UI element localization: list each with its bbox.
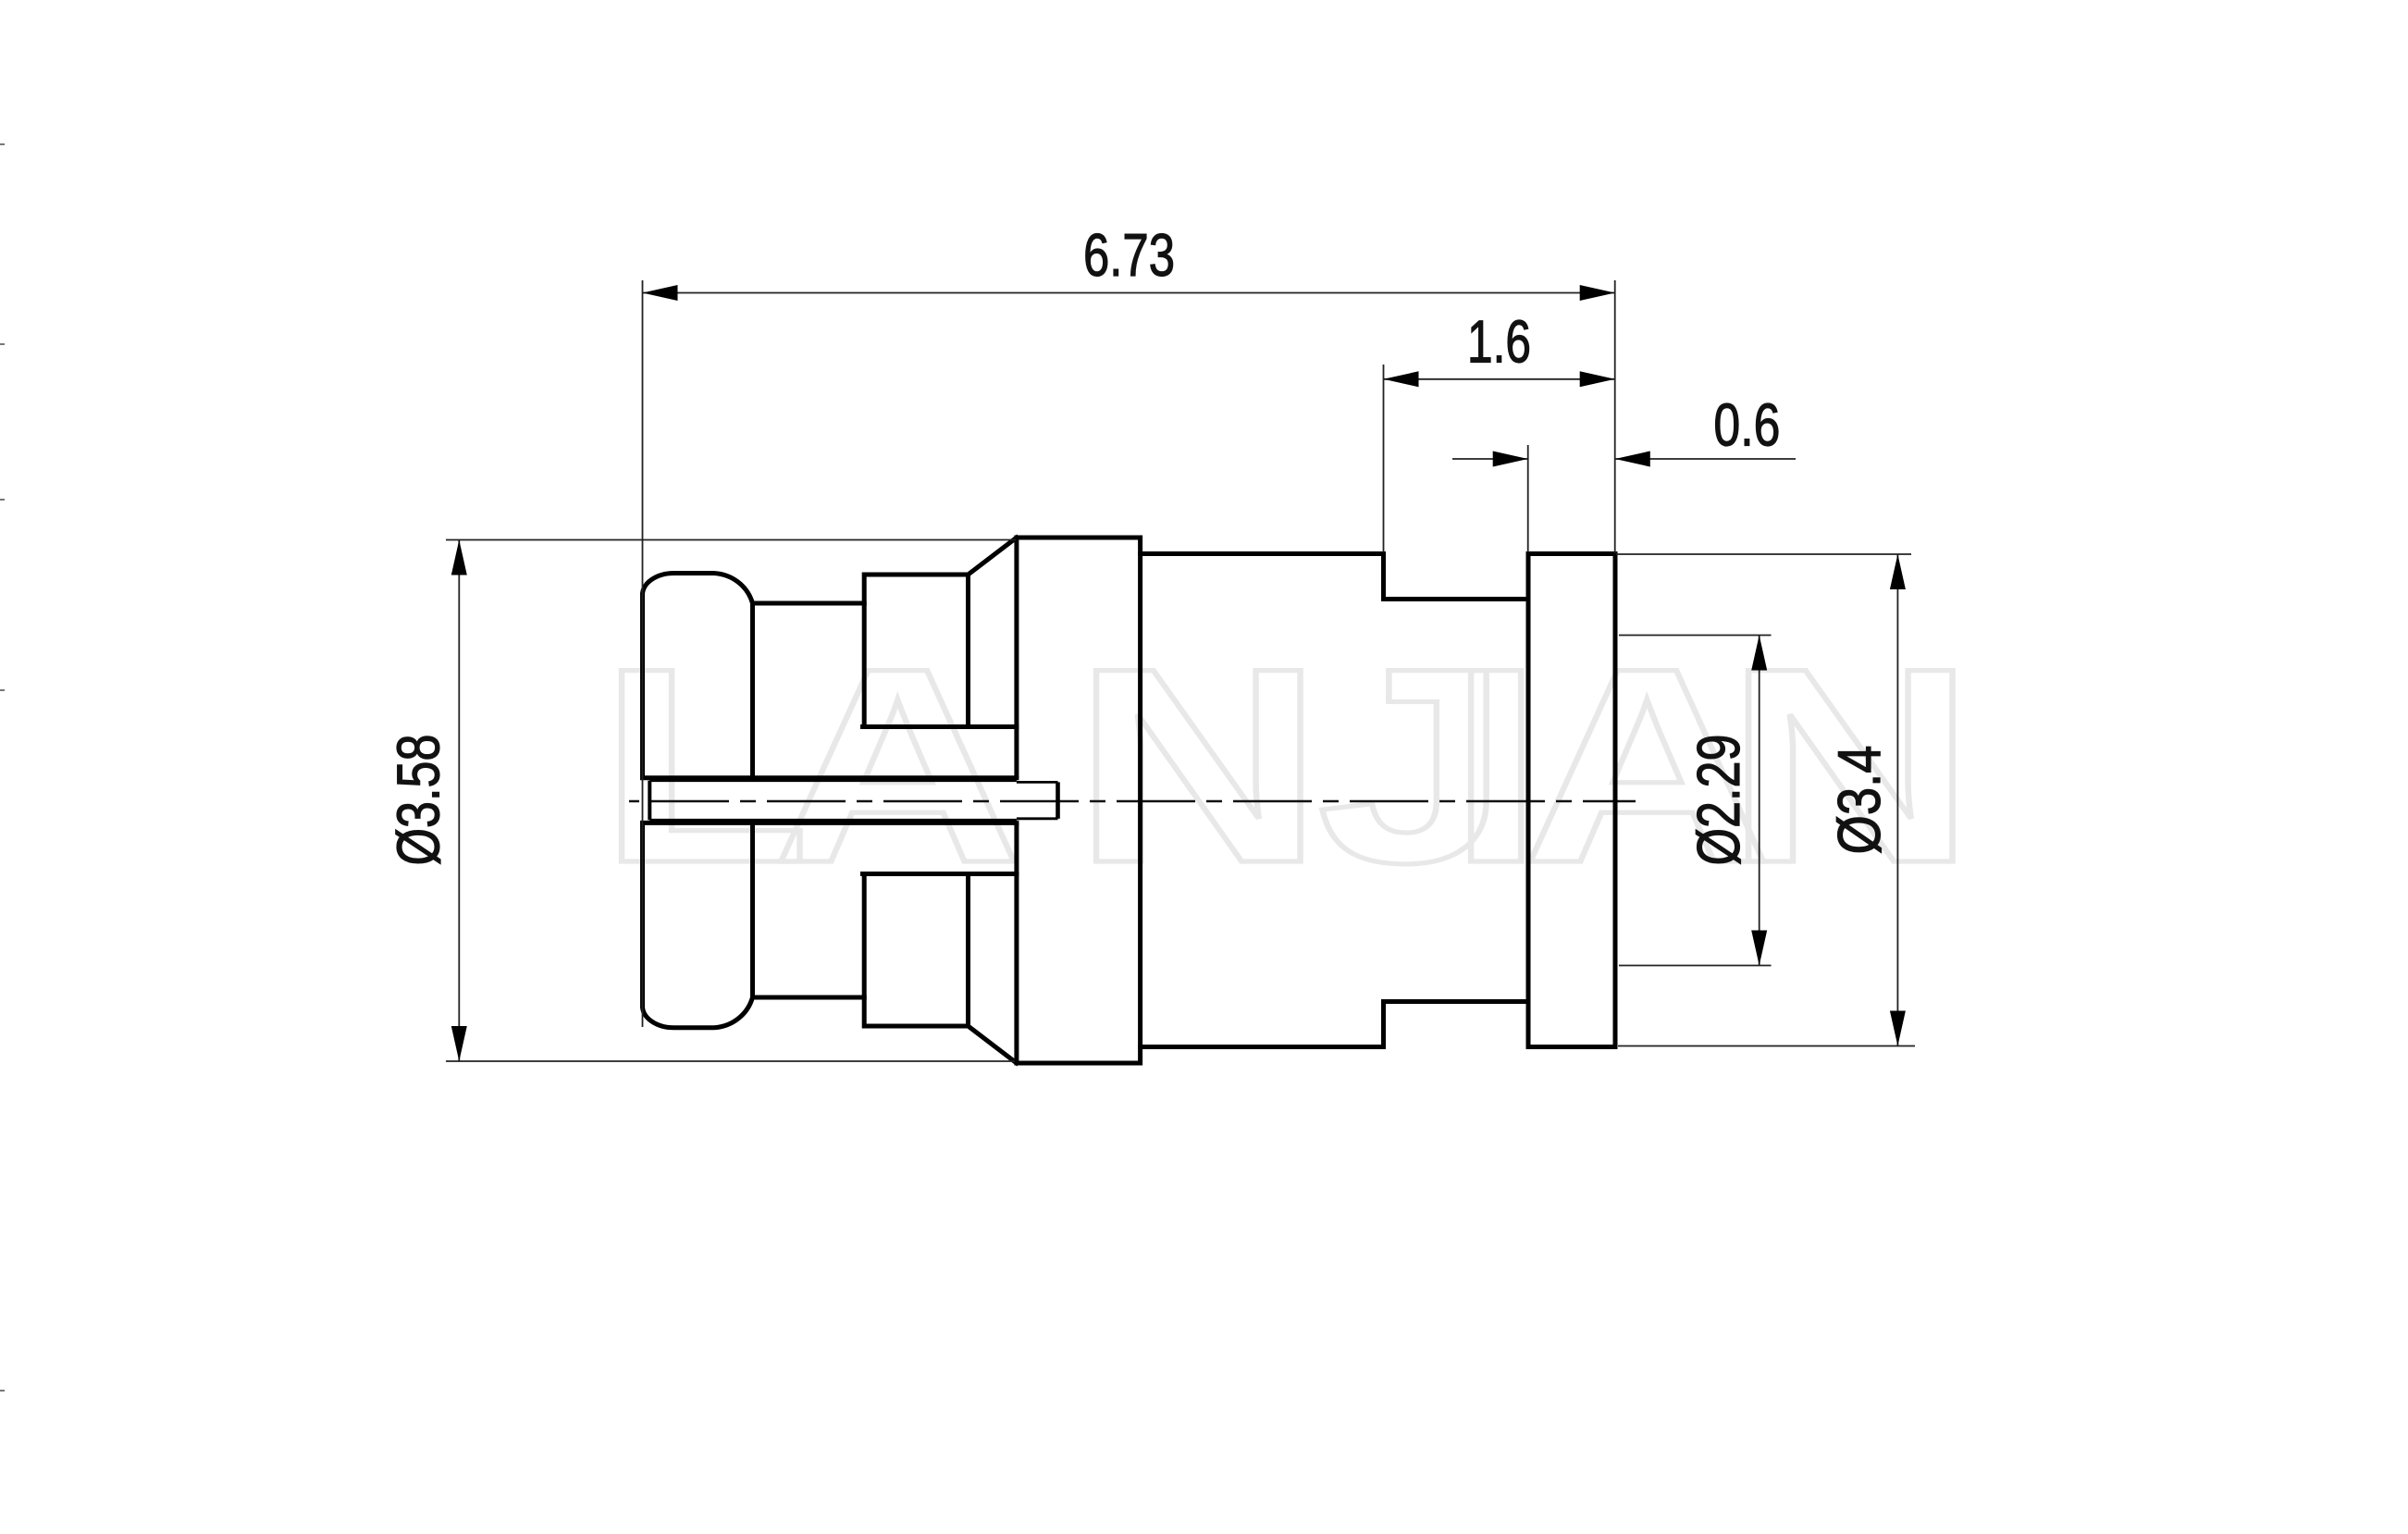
svg-text:LANJIAN: LANJIAN [599,611,1976,921]
svg-text:0.6: 0.6 [1713,392,1780,459]
svg-text:Ø3.58: Ø3.58 [386,735,452,866]
svg-text:6.73: 6.73 [1083,222,1175,289]
svg-text:Ø3.4: Ø3.4 [1826,746,1893,855]
svg-text:1.6: 1.6 [1467,309,1531,376]
svg-text:Ø2.29: Ø2.29 [1686,735,1752,866]
